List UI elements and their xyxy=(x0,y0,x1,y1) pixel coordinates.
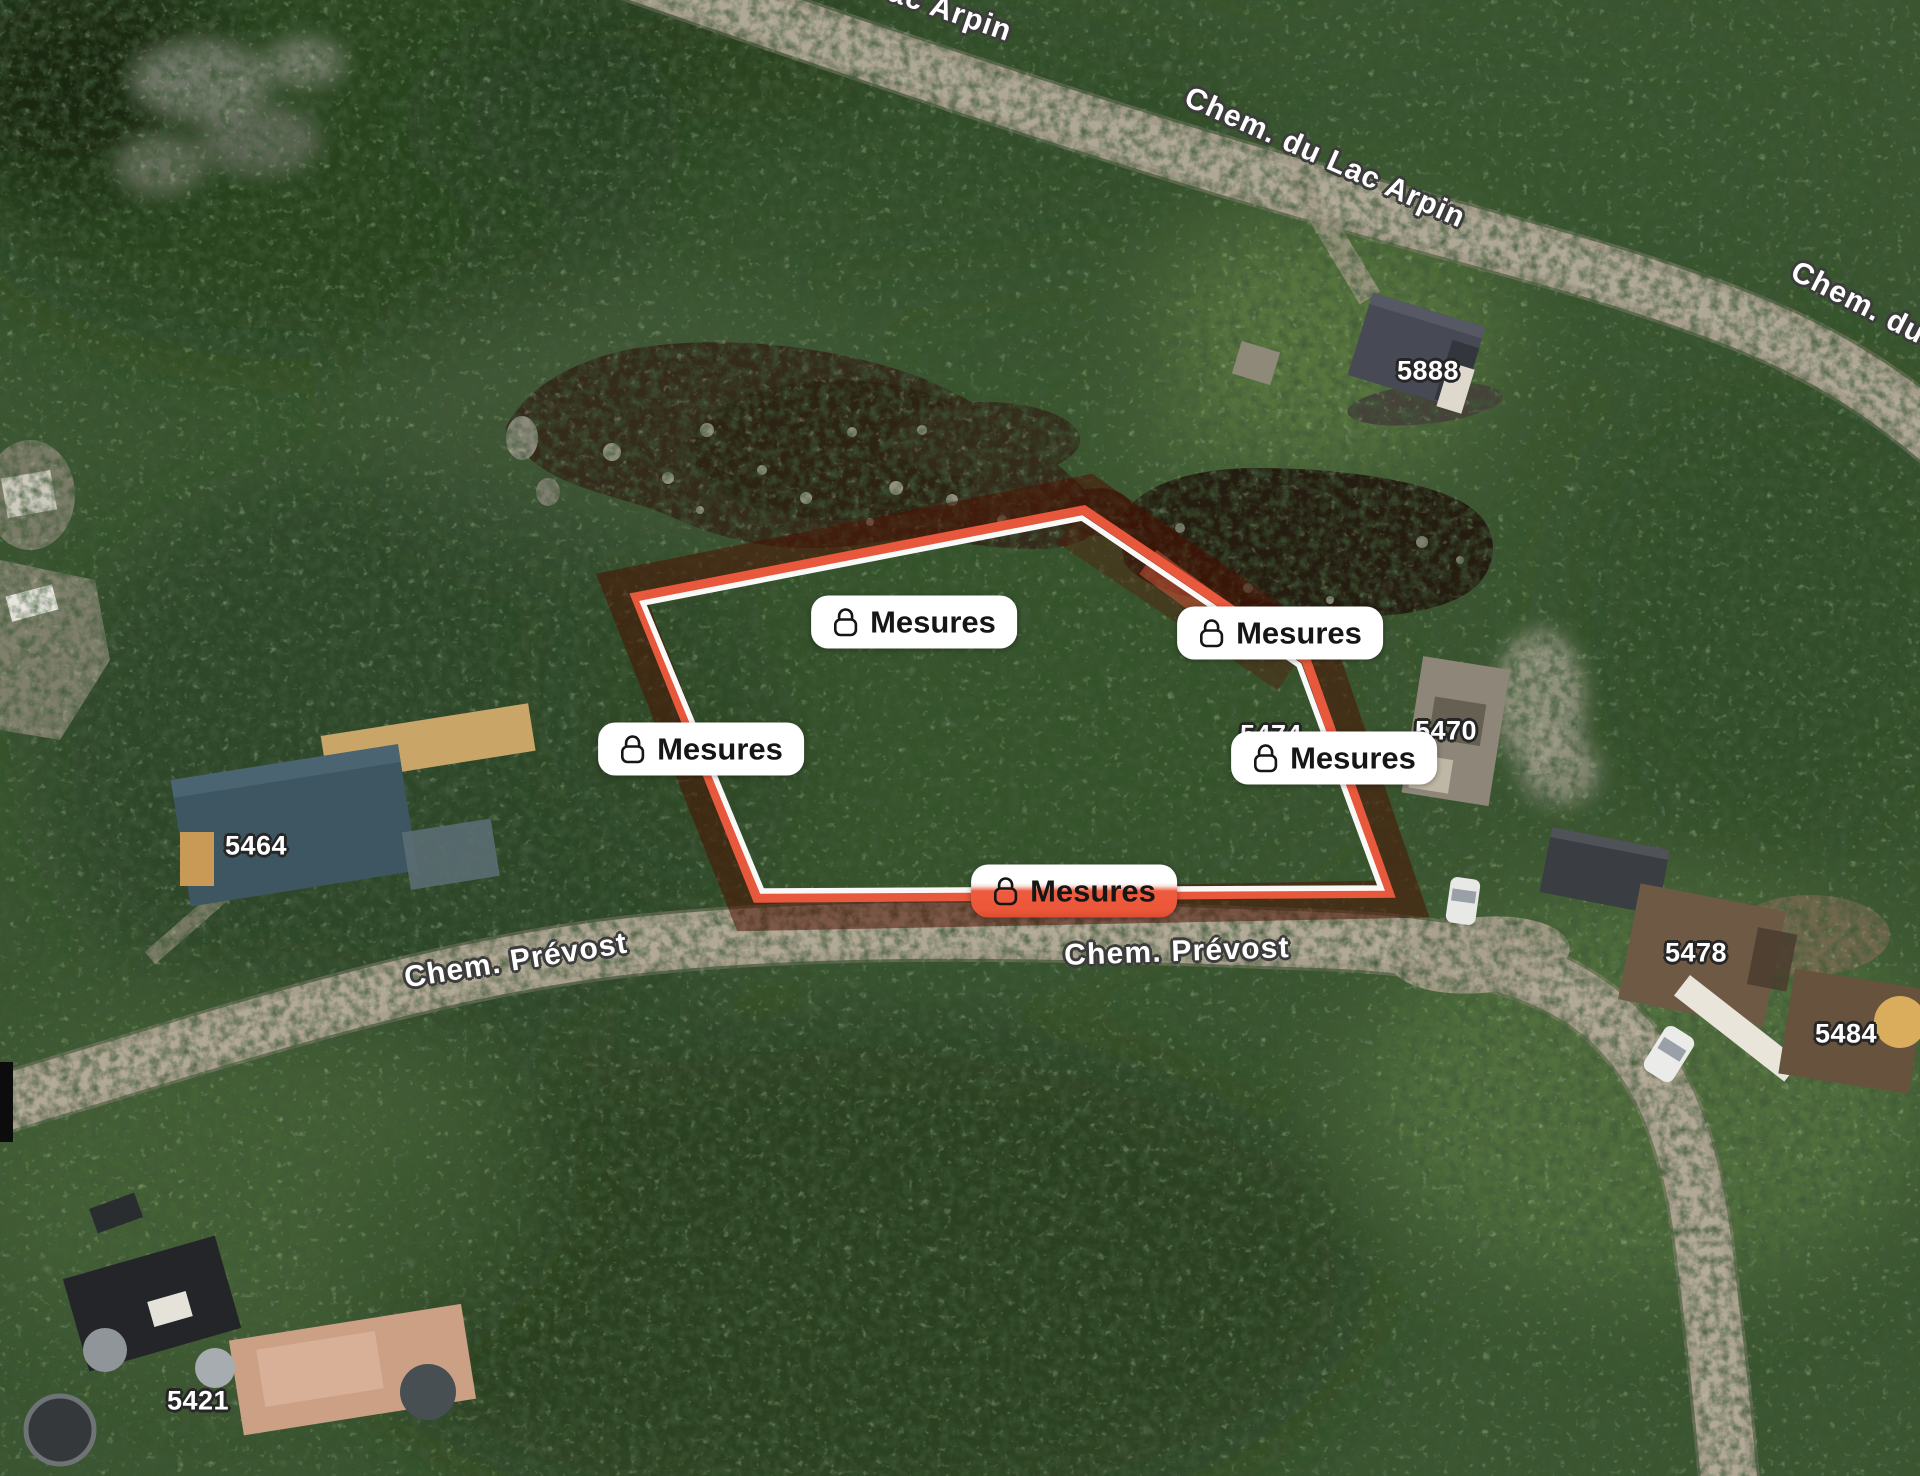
log-pile-5464 xyxy=(180,832,214,886)
measure-pill-label: Mesures xyxy=(870,607,996,638)
measure-pill-upper-right[interactable]: Mesures xyxy=(1177,607,1383,660)
house-number-5478: 5478 xyxy=(1665,938,1727,969)
measure-pill-bottom[interactable]: Mesures xyxy=(971,865,1177,918)
lock-icon xyxy=(992,876,1019,907)
lock-icon xyxy=(619,734,646,765)
house-number-5888: 5888 xyxy=(1397,356,1459,387)
measure-pill-right[interactable]: Mesures xyxy=(1231,732,1437,785)
lock-icon xyxy=(1198,618,1225,649)
edge-artifact xyxy=(0,1062,13,1142)
canopy-texture-gray xyxy=(0,0,1920,1476)
house-number-5484: 5484 xyxy=(1815,1019,1877,1050)
house-number-5464: 5464 xyxy=(225,831,287,862)
measure-pill-label: Mesures xyxy=(1030,876,1156,907)
lock-icon xyxy=(1252,743,1279,774)
measure-pill-label: Mesures xyxy=(1236,618,1362,649)
measure-pill-label: Mesures xyxy=(657,734,783,765)
car-white-5470 xyxy=(1445,876,1481,926)
satellite-map-view[interactable]: ac Arpin Chem. du Lac Arpin Chem. du Che… xyxy=(0,0,1920,1476)
lock-icon xyxy=(832,607,859,638)
satellite-imagery[interactable] xyxy=(0,0,1920,1476)
measure-pill-top[interactable]: Mesures xyxy=(811,596,1017,649)
house-number-5421: 5421 xyxy=(167,1386,229,1417)
measure-pill-left[interactable]: Mesures xyxy=(598,723,804,776)
measure-pill-label: Mesures xyxy=(1290,743,1416,774)
